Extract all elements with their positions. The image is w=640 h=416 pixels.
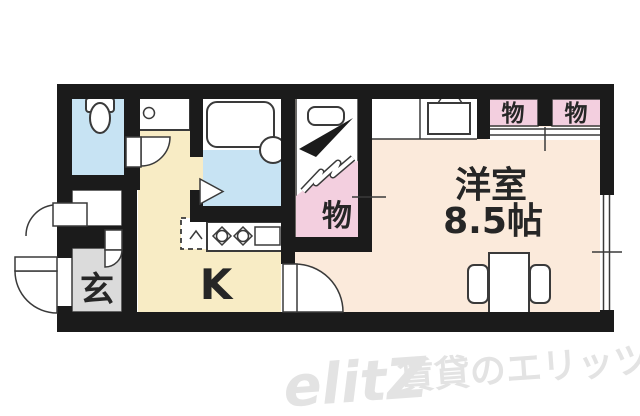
storage-door-arc (26, 205, 53, 236)
wall-upper-closet-gap (538, 99, 552, 126)
closet-hatch-icon (308, 107, 344, 125)
chair-right-icon (530, 265, 550, 303)
wall-closet-right (358, 97, 372, 252)
upper-closet-right-label: 物 (565, 100, 588, 127)
laundry-space (372, 97, 477, 139)
storage-door-leaf (53, 203, 87, 226)
closet-label: 物 (322, 199, 352, 234)
table-icon (489, 253, 529, 313)
entrance-label: 玄 (80, 270, 114, 310)
floor-plan-page: 玄 K 物 物 物 洋室 8.5帖 elitZ 賃貸のエリッツ (0, 0, 640, 416)
hall-door-leaf (126, 137, 141, 167)
wall-right-upper (600, 84, 614, 195)
kitchen-west-door-leaf (283, 264, 297, 312)
wall-left-lower (57, 306, 72, 332)
stove-burner-right-ring (238, 231, 249, 242)
stove-burner-left-ring (217, 231, 228, 242)
wall-toilet-bottom (57, 175, 140, 190)
washbasin-drain-icon (144, 108, 155, 119)
western-room-size-label: 8.5帖 (443, 201, 543, 242)
wall-entrance-right (122, 190, 137, 312)
floor-plan-svg: 玄 K 物 物 物 洋室 8.5帖 elitZ 賃貸のエリッツ (0, 0, 640, 416)
chair-left-icon (468, 265, 488, 303)
watermark-caption: 賃貸のエリッツ (396, 340, 640, 399)
wall-laundry-right (477, 97, 490, 139)
kitchen-fixtures (181, 218, 283, 251)
wall-kitchen-west (281, 97, 295, 264)
wall-right-lower (600, 310, 614, 332)
wall-bath-bottom (190, 206, 293, 222)
washer-icon (428, 103, 470, 134)
kitchen-label: K (200, 260, 234, 309)
entrance-cupboard (105, 230, 122, 250)
wall-left-mid (57, 226, 72, 258)
wall-bath-left-upper (190, 97, 203, 157)
wall-top (57, 84, 614, 99)
washbasin-area (138, 97, 190, 130)
entrance-door-leaf (15, 257, 57, 271)
western-room-label: 洋室 (455, 165, 527, 206)
upper-closet-left-label: 物 (502, 100, 525, 127)
kitchen-sink-icon (255, 227, 280, 245)
entrance-door-arc (15, 271, 57, 313)
wall-bottom (57, 312, 614, 332)
watermark: elitZ 賃貸のエリッツ (281, 330, 640, 416)
wall-closet-bottom (293, 237, 365, 252)
